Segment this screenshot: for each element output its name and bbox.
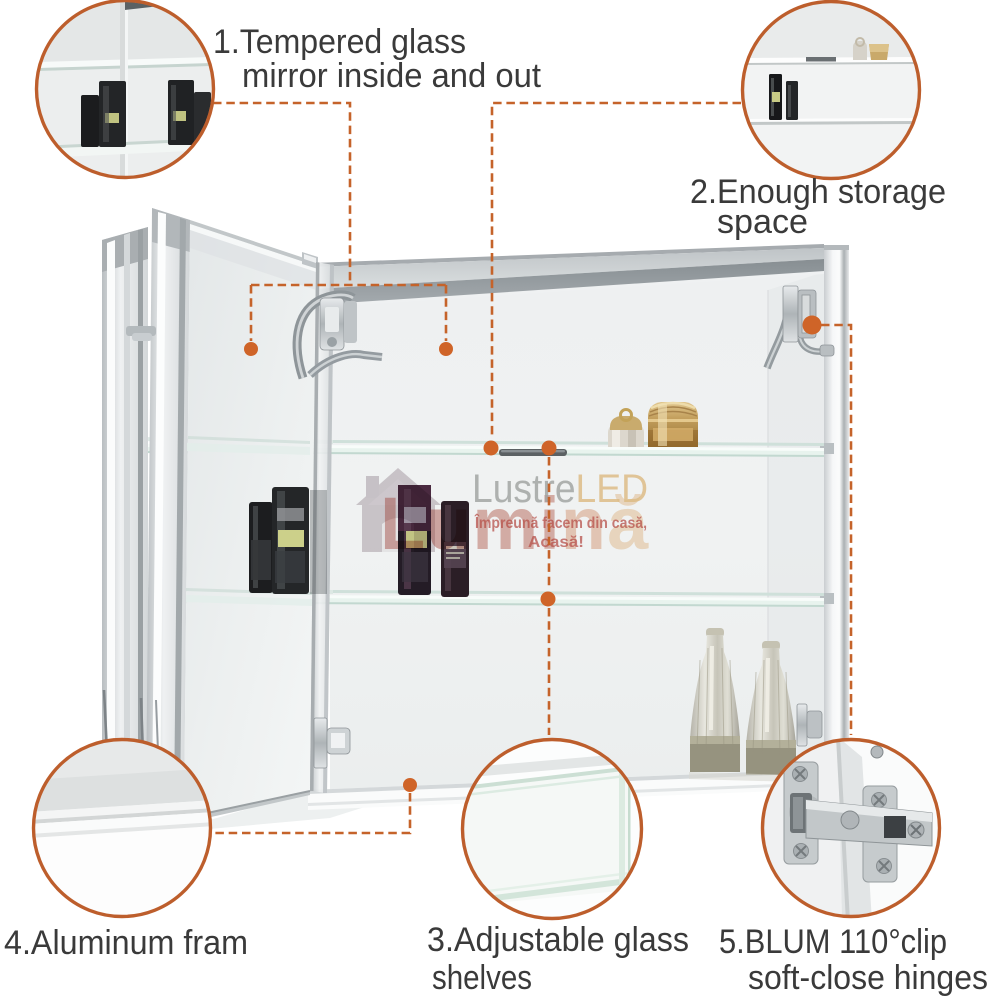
svg-text:1.Tempered glass: 1.Tempered glass [213, 23, 466, 61]
svg-text:4.Aluminum fram: 4.Aluminum fram [4, 924, 248, 962]
svg-text:soft-close hinges: soft-close hinges [748, 959, 988, 997]
svg-text:mirror inside and out: mirror inside and out [242, 57, 542, 95]
svg-text:3.Adjustable glass: 3.Adjustable glass [427, 921, 689, 959]
svg-text:5.BLUM 110°clip: 5.BLUM 110°clip [719, 923, 947, 961]
svg-text:LustreLED: LustreLED [472, 467, 648, 511]
svg-text:space: space [717, 203, 808, 241]
svg-text:Împreună facem din casă,: Împreună facem din casă, [474, 513, 647, 532]
svg-text:Acasă!: Acasă! [528, 534, 584, 551]
svg-text:shelves: shelves [432, 959, 532, 997]
